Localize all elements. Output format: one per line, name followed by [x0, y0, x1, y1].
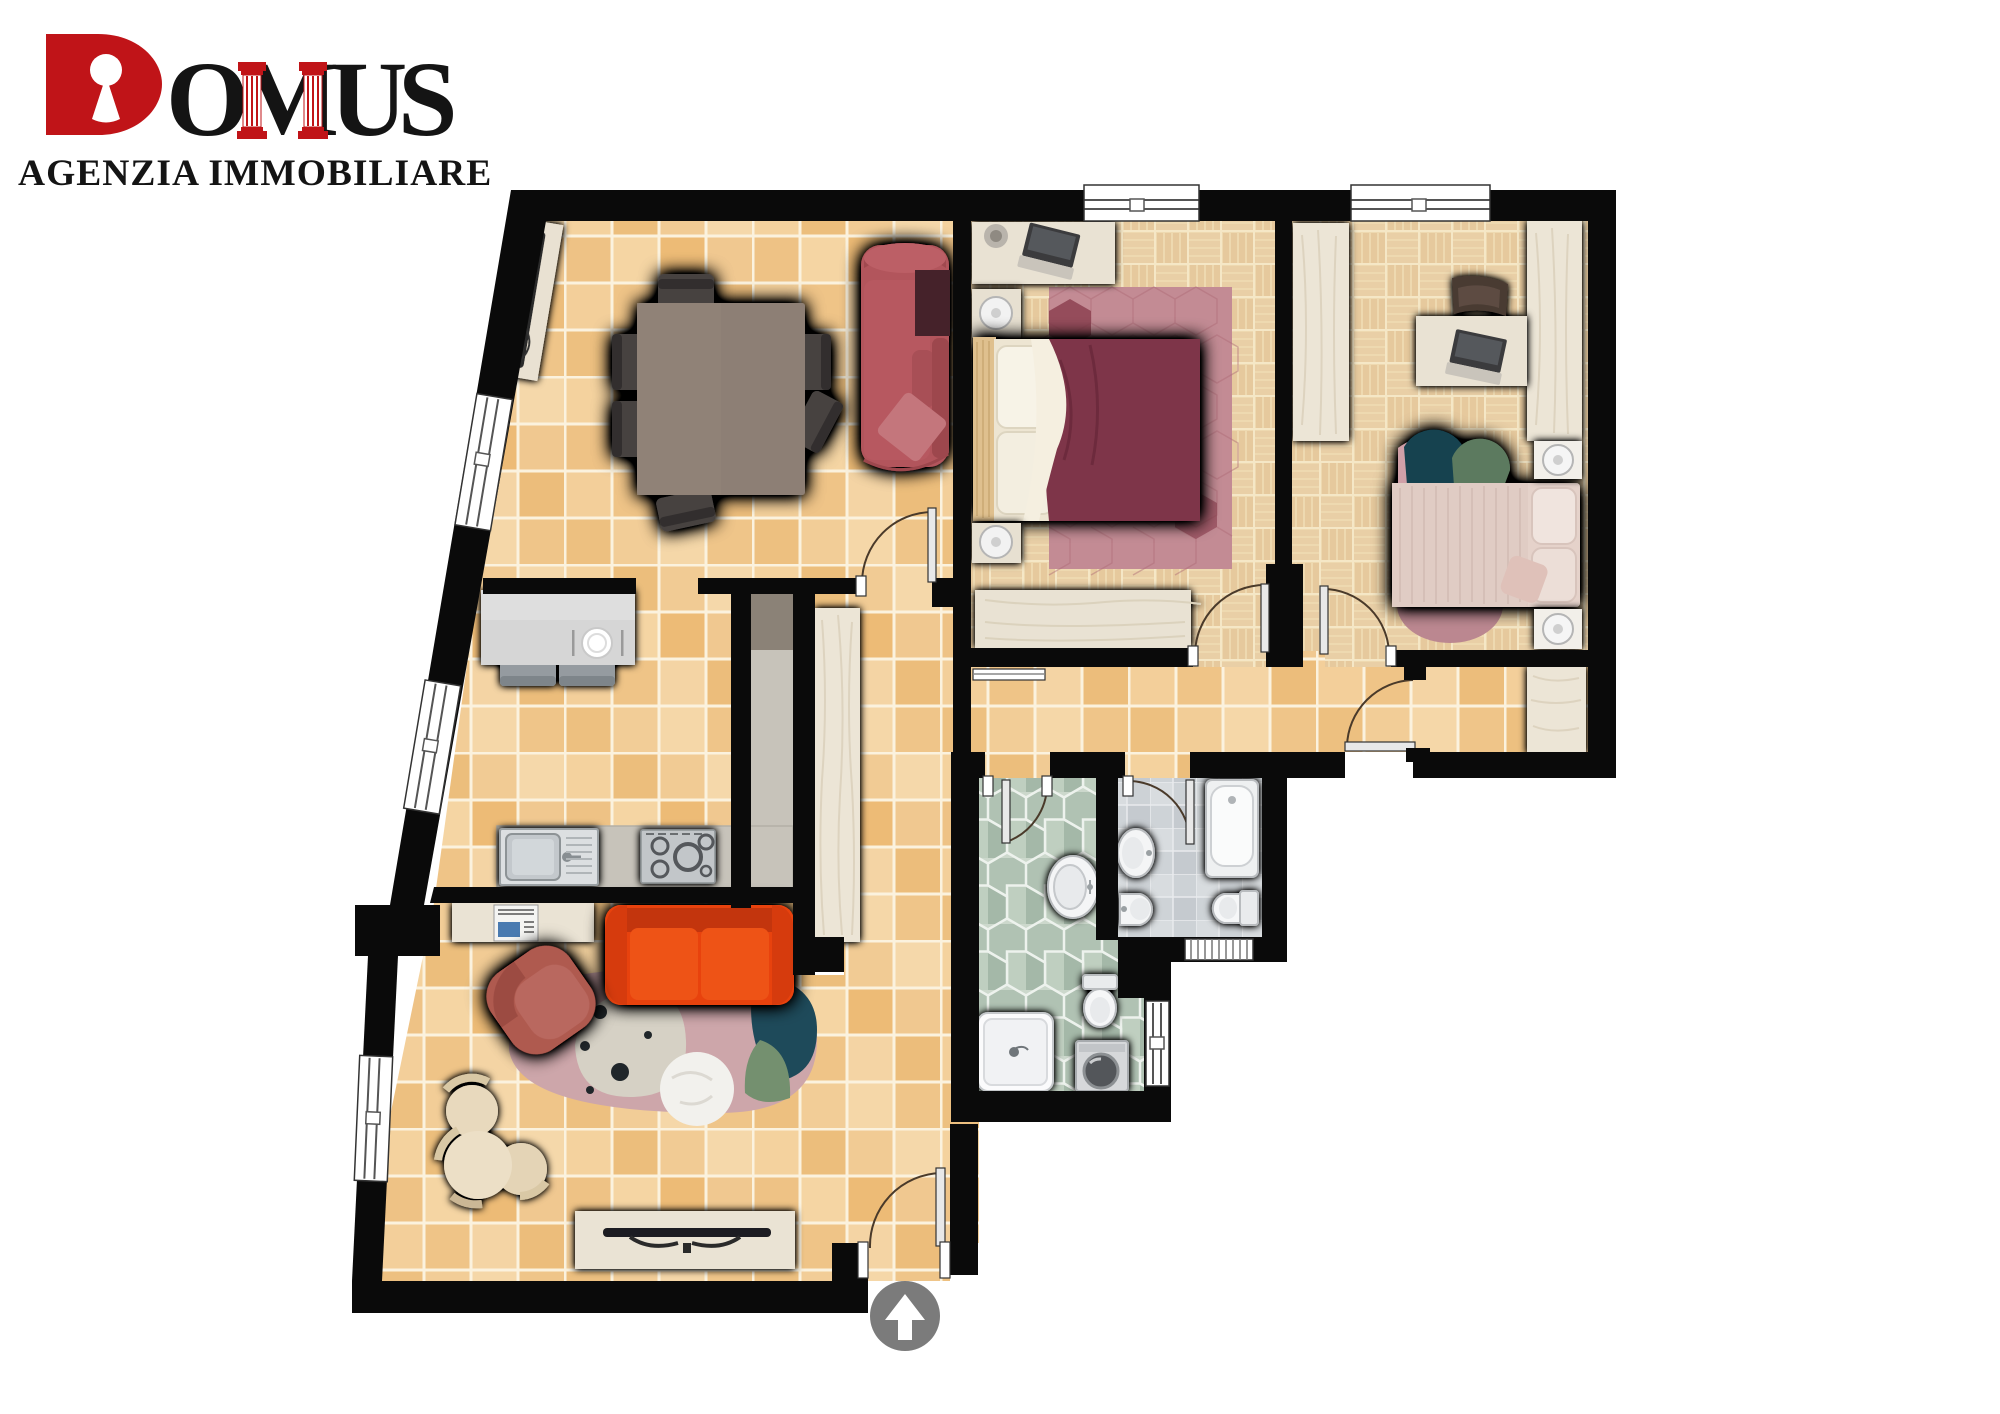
svg-text:U: U [330, 41, 407, 159]
svg-text:AGENZIA IMMOBILIARE: AGENZIA IMMOBILIARE [18, 153, 492, 194]
svg-text:S: S [398, 41, 458, 159]
svg-text:O: O [166, 41, 249, 159]
